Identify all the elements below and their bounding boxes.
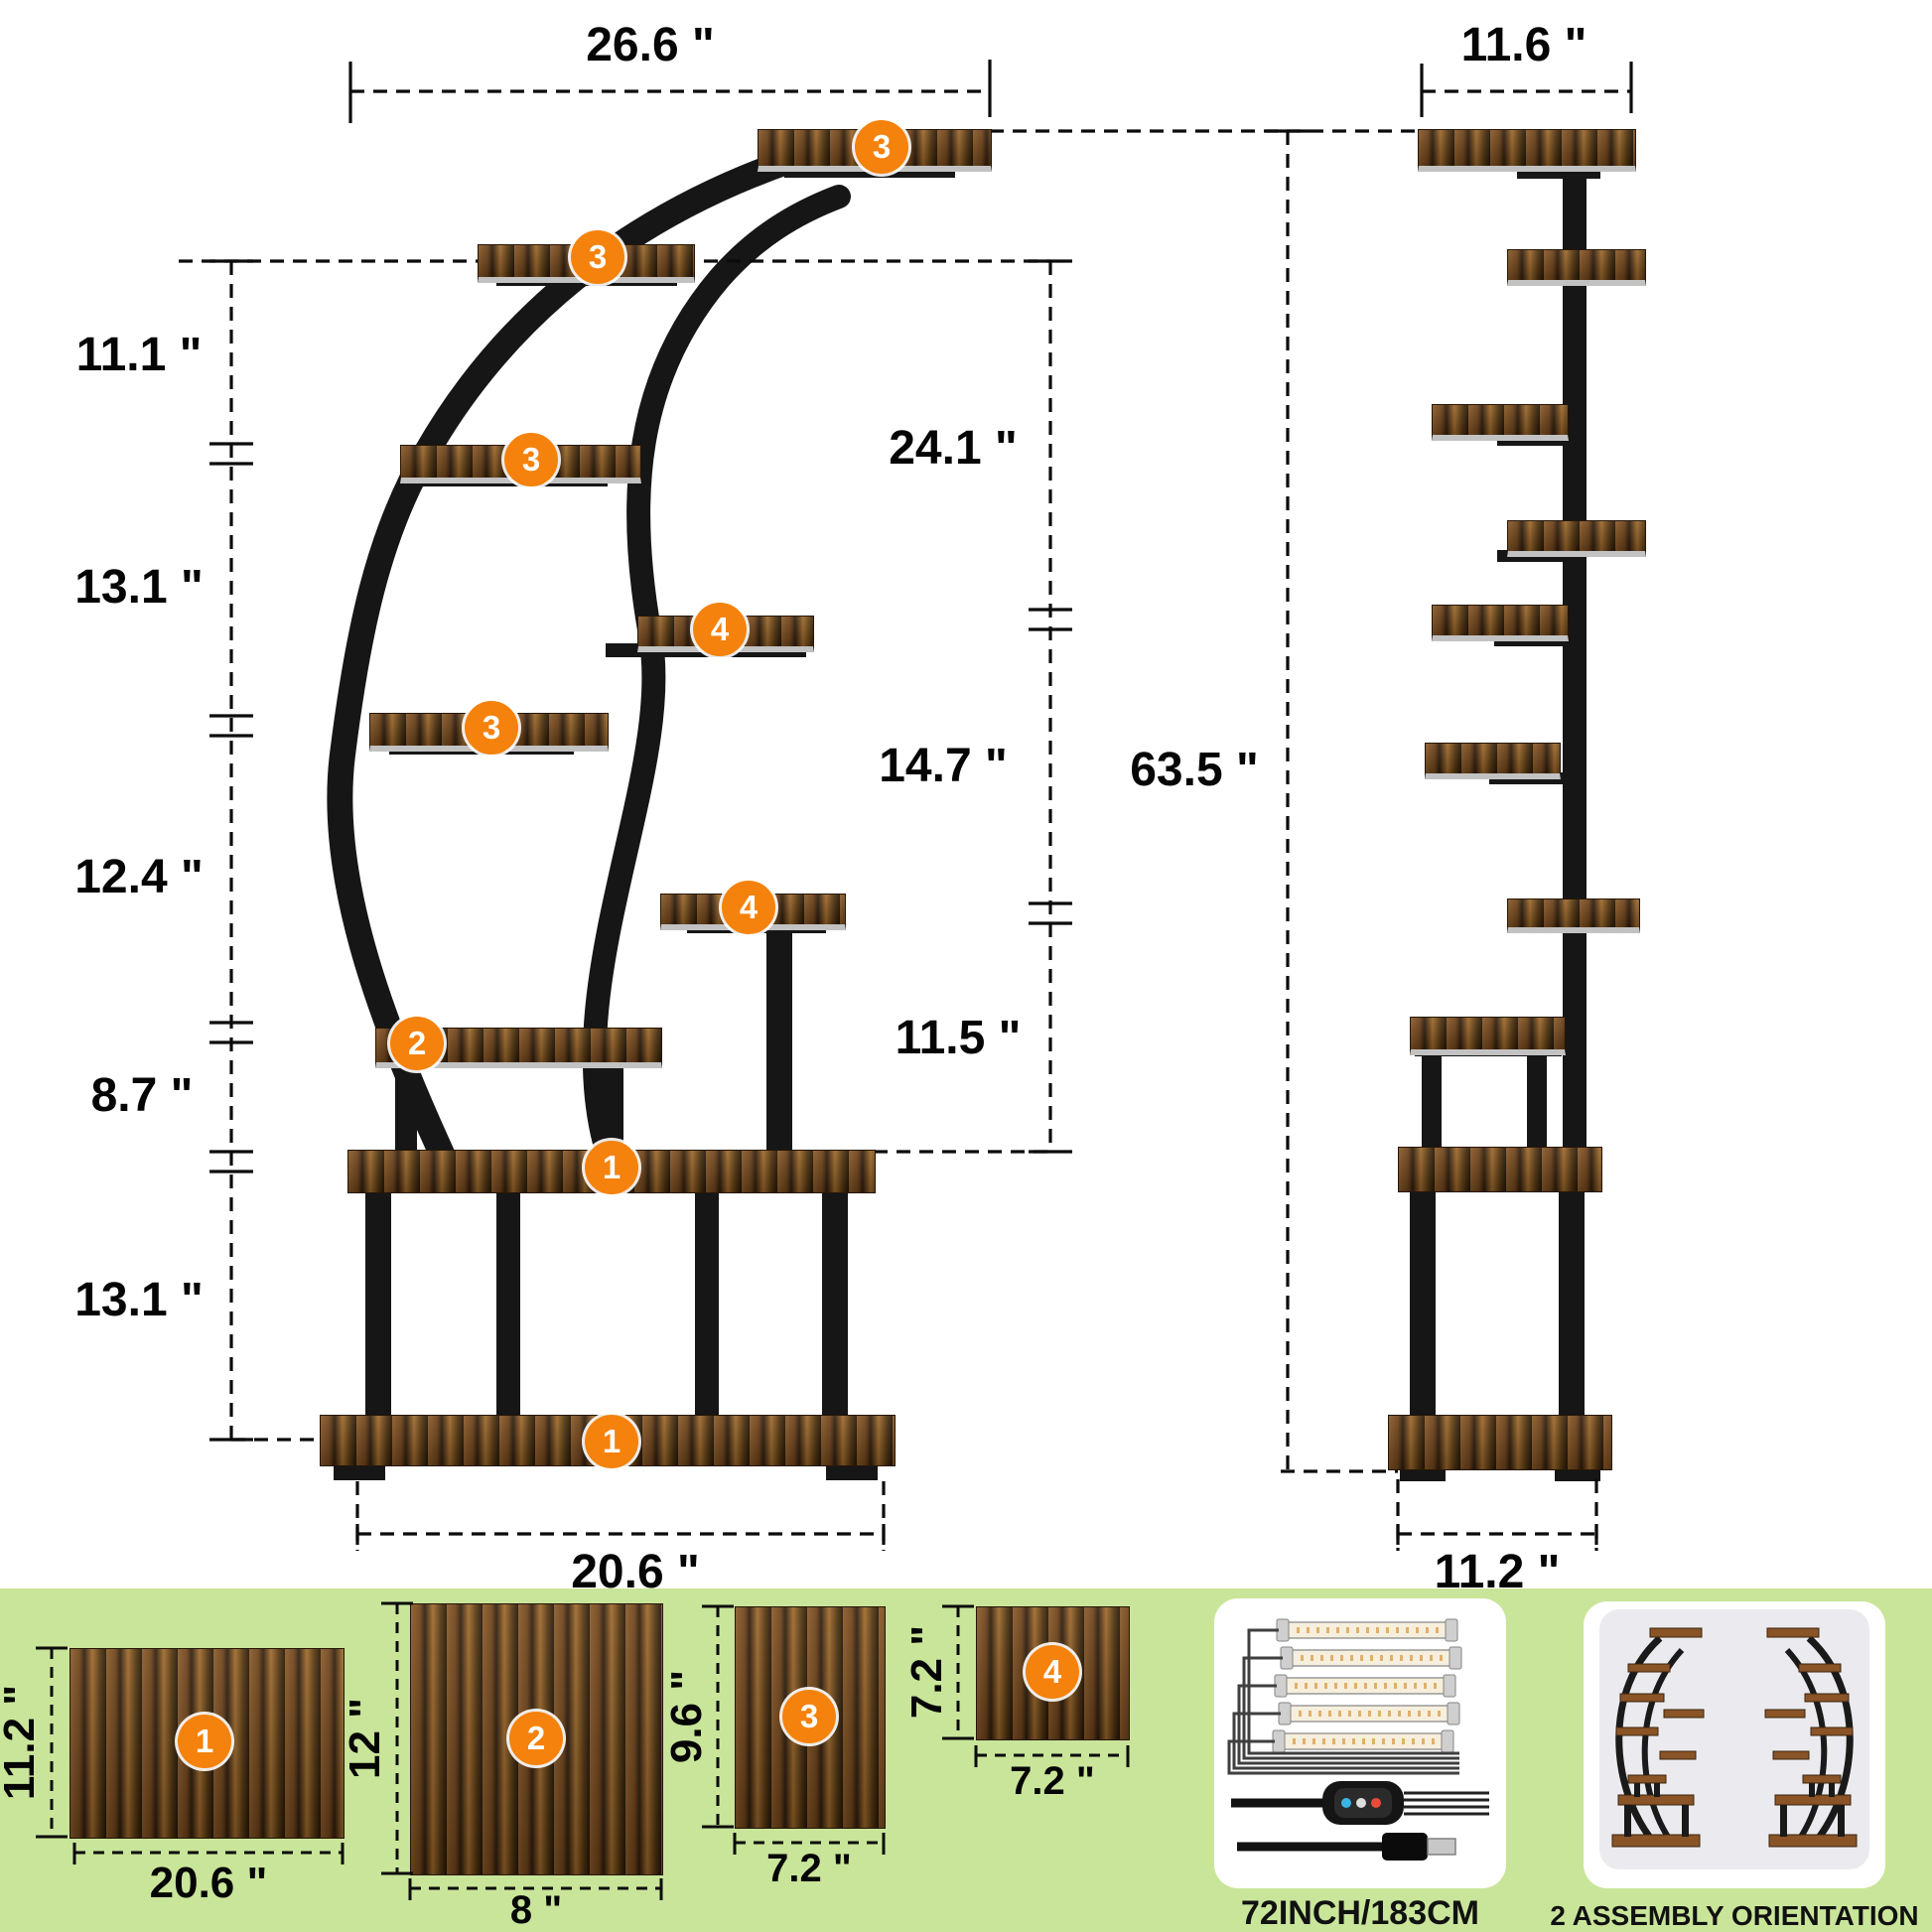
shelf-badge: 4 <box>693 603 747 656</box>
assembly-caption: 2 ASSEMBLY ORIENTATION <box>1546 1900 1923 1932</box>
shelf-badge: 3 <box>571 230 624 284</box>
front-left-height-label: 11.1 " <box>55 328 223 382</box>
panel3-width-label: 7.2 " <box>700 1847 918 1891</box>
led-strip <box>1281 1647 1461 1669</box>
led-controller <box>1231 1781 1489 1825</box>
panel4-width-label: 7.2 " <box>943 1759 1162 1804</box>
panel2-height-label: 12 " <box>342 1619 389 1858</box>
panel-badge: 4 <box>1026 1645 1079 1699</box>
front-top-width-label: 26.6 " <box>541 18 759 72</box>
shelf-badge: 3 <box>465 701 518 755</box>
shelf-badge: 2 <box>390 1017 444 1070</box>
front-right-height-label: 14.7 " <box>839 739 1047 793</box>
side-bottom-width-label: 11.2 " <box>1388 1545 1606 1599</box>
panel-badge: 3 <box>782 1690 836 1743</box>
shelf-badge: 3 <box>855 120 908 174</box>
panel1-width-label: 20.6 " <box>99 1859 318 1908</box>
shelf-badge: 3 <box>504 433 558 486</box>
led-strips <box>1273 1619 1461 1752</box>
front-right-height-label: 11.5 " <box>854 1011 1062 1065</box>
front-right-height-label: 24.1 " <box>849 421 1057 476</box>
led-strip <box>1277 1619 1457 1641</box>
panel2-width-label: 8 " <box>427 1888 645 1932</box>
side-top-width-label: 11.6 " <box>1420 18 1628 72</box>
mini-stand-left <box>1612 1628 1704 1847</box>
front-left-height-label: 12.4 " <box>55 850 223 904</box>
front-left-height-label: 13.1 " <box>55 1273 223 1327</box>
panel1-height-label: 11.2 " <box>0 1623 44 1862</box>
front-left-height-label: 8.7 " <box>68 1068 216 1123</box>
front-bottom-width-label: 20.6 " <box>526 1545 745 1599</box>
panel4-height-label: 7.2 " <box>903 1553 951 1791</box>
mini-stand-right <box>1765 1628 1857 1847</box>
shelf-badge: 4 <box>722 881 775 934</box>
panel-badge: 1 <box>178 1715 231 1768</box>
led-strip <box>1273 1730 1453 1752</box>
led-strip <box>1275 1675 1455 1697</box>
shelf-badge: 1 <box>585 1141 638 1194</box>
shelf-badge: 1 <box>585 1415 638 1468</box>
assembly-orientation-stands <box>1612 1628 1857 1847</box>
panel-badge: 2 <box>509 1712 563 1765</box>
panel3-height-label: 9.6 " <box>663 1597 711 1836</box>
footer-graphics-layer <box>0 0 1932 1932</box>
led-grow-light-kit <box>1229 1619 1489 1861</box>
usb-plug <box>1237 1833 1455 1861</box>
total-height-label: 63.5 " <box>1090 743 1299 797</box>
plant-stand-dimension-diagram: 3 3 3 4 3 4 2 1 1 26.6 " 11.6 " 11.1 " 1… <box>0 0 1932 1932</box>
led-strip <box>1279 1703 1459 1725</box>
front-left-height-label: 13.1 " <box>55 560 223 615</box>
led-caption: 72INCH/183CM <box>1231 1894 1489 1932</box>
